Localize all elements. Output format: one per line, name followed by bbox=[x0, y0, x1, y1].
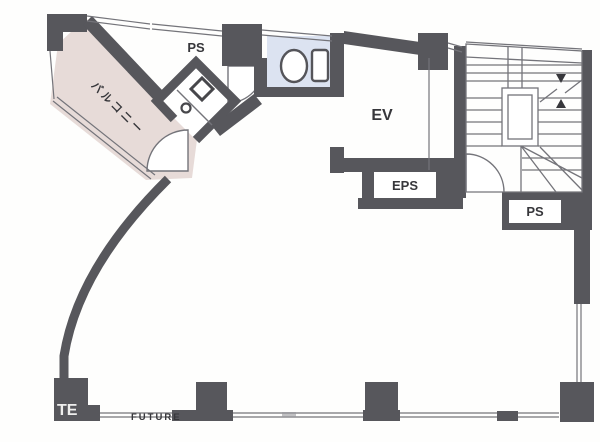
floor-plan: PS EV EPS PS バルコニー TE FUTURE bbox=[0, 0, 600, 442]
stairs-top-edge bbox=[466, 57, 582, 63]
toilet-icon bbox=[281, 50, 328, 82]
wall-bottom-pier-1 bbox=[196, 382, 227, 412]
wall-ev-left-upper bbox=[330, 33, 344, 97]
wall-eps-left bbox=[362, 172, 374, 198]
wall-bottom-pier-2 bbox=[365, 382, 398, 412]
wall-bottom-right-corner bbox=[560, 382, 594, 422]
stairs-winders bbox=[521, 146, 582, 192]
stairs-left-treads bbox=[466, 98, 502, 146]
stairs-door-swing-arc bbox=[466, 154, 504, 192]
wall-right-mid bbox=[574, 230, 590, 304]
wall-bottom-small-block bbox=[497, 411, 518, 421]
wall-ev-bottom bbox=[343, 158, 463, 172]
eps-label: EPS bbox=[392, 178, 418, 193]
toilet-bowl bbox=[281, 50, 307, 82]
stairs-direction-lines bbox=[540, 80, 582, 102]
wall-toilet-bottom bbox=[262, 87, 332, 97]
stairs-upper-treads bbox=[466, 65, 582, 81]
window-top-2 bbox=[152, 24, 222, 36]
window-bottom-2 bbox=[233, 413, 363, 417]
watermark-future: FUTURE bbox=[131, 412, 182, 423]
pipe-shaft-right-label: PS bbox=[526, 204, 544, 219]
wall-ev-top bbox=[344, 31, 420, 55]
wall-bottom-pier-2-base bbox=[363, 410, 400, 421]
pipe-shaft-top-label: PS bbox=[187, 40, 205, 55]
floor-plan-svg: PS EV EPS PS バルコニー TE FUTURE bbox=[0, 0, 600, 442]
window-right-lower bbox=[577, 304, 581, 382]
watermark-logo-fragment: TE bbox=[57, 402, 78, 419]
arrow-up-icon bbox=[556, 99, 566, 108]
window-bottom-4 bbox=[518, 413, 559, 417]
wall-ev-left-lower bbox=[330, 147, 344, 173]
window-bottom-3 bbox=[400, 413, 497, 417]
toilet-tank bbox=[312, 50, 328, 81]
stairs-upper-dividers bbox=[508, 46, 522, 88]
window-center-tick bbox=[282, 412, 296, 417]
elevator-label: EV bbox=[371, 107, 393, 124]
wall-eps-right bbox=[436, 172, 466, 198]
wall-pier-right-of-ev bbox=[418, 33, 448, 70]
stairs-direction-arrows bbox=[556, 74, 566, 108]
curved-wall bbox=[64, 179, 168, 380]
faucet-icon bbox=[182, 104, 191, 113]
wall-right-upper bbox=[582, 50, 592, 193]
wall-eps-bottom bbox=[358, 198, 463, 209]
